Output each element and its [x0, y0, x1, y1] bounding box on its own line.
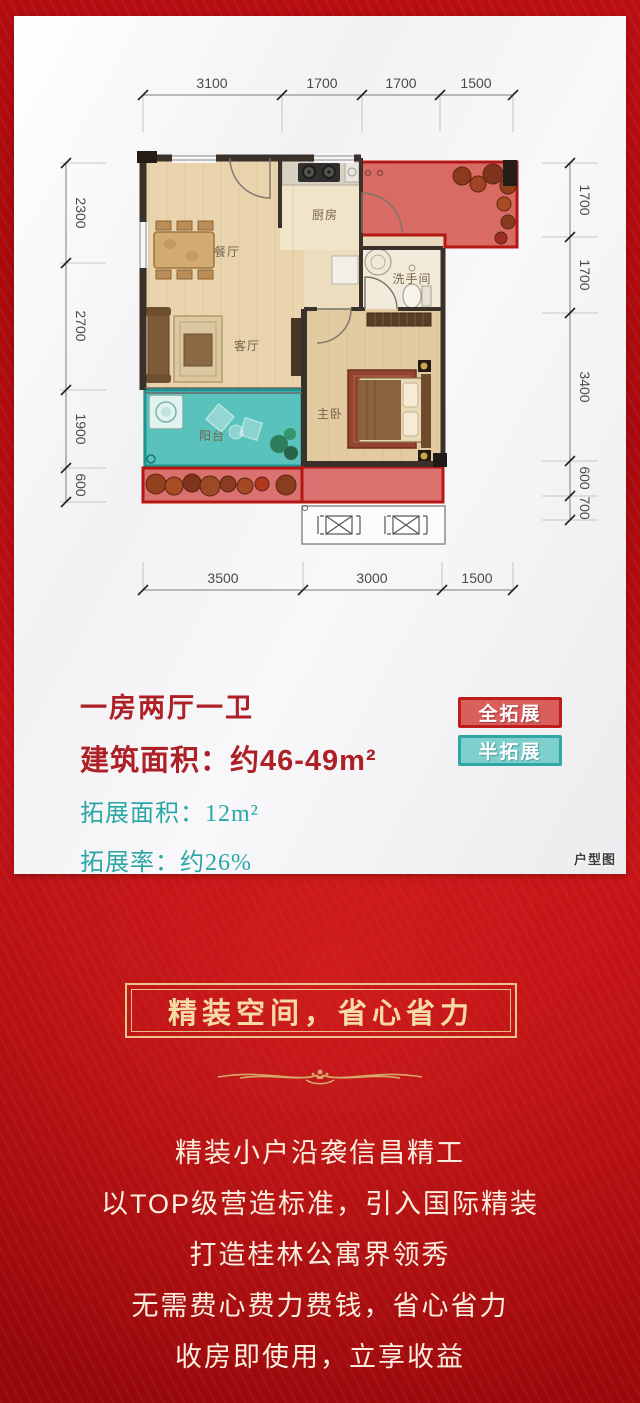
legend-full-extension: 全拓展 — [458, 697, 562, 728]
legend-half-extension: 半拓展 — [458, 735, 562, 766]
extension-rate-value: 约26% — [180, 850, 252, 876]
copy-line-1: 精装小户沿袭信昌精工 — [0, 1128, 640, 1179]
coffee-table — [184, 334, 212, 366]
copy-line-4: 无需费心费力费钱，省心省力 — [0, 1281, 640, 1332]
extension-area-value: 12m² — [205, 801, 259, 827]
banner-title: 精装空间，省心省力 — [168, 990, 474, 1032]
dim-left-3: 1900 — [73, 413, 89, 444]
dim-top-1: 3100 — [196, 75, 227, 91]
dim-left-4: 600 — [73, 473, 89, 497]
dim-right-3: 3400 — [577, 371, 593, 402]
dining-table — [154, 221, 214, 279]
dim-top-4: 1500 — [460, 75, 491, 91]
room-label-living: 客厅 — [234, 338, 260, 353]
dim-right-4: 600 — [577, 466, 593, 490]
room-label-bedroom: 主卧 — [317, 407, 343, 421]
room-label-kitchen: 厨房 — [312, 207, 338, 222]
sofa — [145, 307, 171, 383]
extension-legend: 全拓展 半拓展 — [458, 697, 562, 766]
copy-line-5: 收房即使用，立享收益 — [0, 1332, 640, 1383]
floorplan-card: 餐厅 厨房 客厅 洗手间 主卧 阳台 — [14, 16, 626, 874]
divider-flourish-icon — [210, 1060, 430, 1090]
dim-left-1: 2300 — [73, 197, 89, 228]
dim-right-5: 700 — [577, 496, 593, 520]
banner-frame: 精装空间，省心省力 — [125, 983, 517, 1038]
dim-bottom-3: 1500 — [461, 570, 492, 586]
build-area: 建筑面积：约46-49m² — [80, 737, 377, 779]
room-label-dining: 餐厅 — [214, 244, 240, 259]
floorplan-corner-label: 户型图 — [574, 849, 616, 868]
extension-area: 拓展面积：12m² — [80, 793, 377, 828]
dim-top-3: 1700 — [385, 75, 416, 91]
unit-info: 一房两厅一卫 建筑面积：约46-49m² 拓展面积：12m² 拓展率：约26% — [80, 686, 377, 877]
copy-line-3: 打造桂林公寓界领秀 — [0, 1230, 640, 1281]
unit-layout: 一房两厅一卫 — [80, 686, 377, 725]
dim-bottom-2: 3000 — [356, 570, 387, 586]
extension-rate-label: 拓展率： — [80, 849, 180, 876]
poster-background: 餐厅 厨房 客厅 洗手间 主卧 阳台 — [0, 0, 640, 1403]
tv-cabinet — [291, 318, 301, 376]
copy-line-2: 以TOP级营造标准，引入国际精装 — [0, 1179, 640, 1230]
dim-right-1: 1700 — [577, 184, 593, 215]
dim-bottom-1: 3500 — [207, 570, 238, 586]
dim-right-2: 1700 — [577, 259, 593, 290]
floorplan-diagram: 餐厅 厨房 客厅 洗手间 主卧 阳台 — [14, 16, 626, 628]
room-label-bath: 洗手间 — [392, 272, 431, 286]
full-extension-bottom-right — [302, 467, 443, 502]
room-label-balcony: 阳台 — [199, 428, 225, 443]
extension-area-label: 拓展面积： — [80, 800, 205, 827]
window-box — [302, 506, 445, 545]
fridge — [332, 256, 358, 284]
extension-rate: 拓展率：约26% — [80, 842, 377, 877]
marketing-copy: 精装小户沿袭信昌精工 以TOP级营造标准，引入国际精装 打造桂林公寓界领秀 无需… — [0, 1128, 640, 1383]
dim-left-2: 2700 — [73, 310, 89, 341]
dim-top-2: 1700 — [306, 75, 337, 91]
banner-inner-frame: 精装空间，省心省力 — [131, 989, 511, 1032]
